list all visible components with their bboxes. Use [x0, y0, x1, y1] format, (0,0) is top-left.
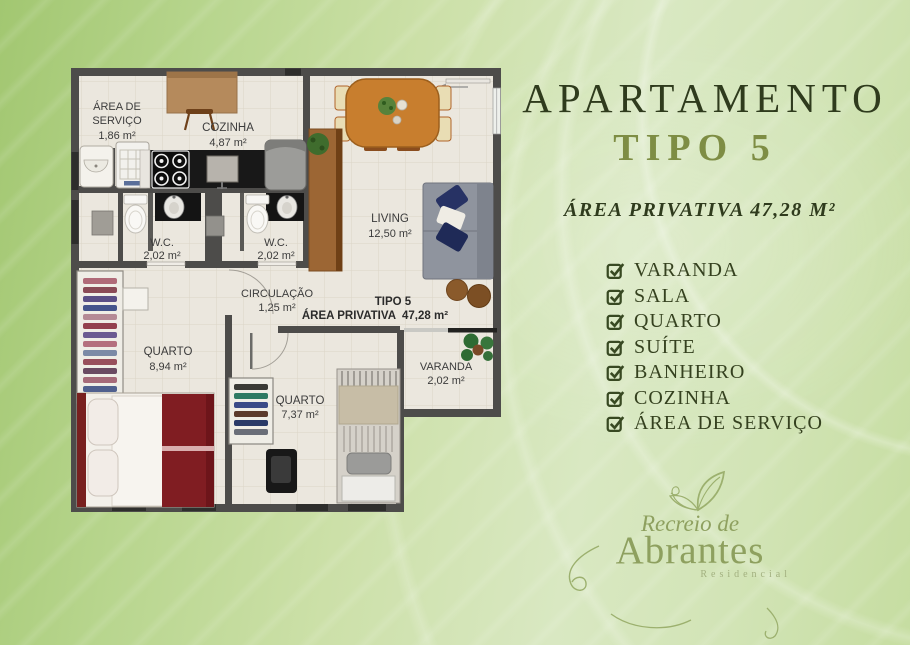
wc1-vanity	[155, 193, 201, 221]
room-area-wc1: 2,02 m²	[143, 250, 181, 262]
feature-label: COZINHA	[634, 387, 731, 410]
room-area-area-servico: 1,86 m²	[98, 130, 136, 142]
dining-table	[346, 79, 439, 147]
page-title: APARTAMENTO	[505, 74, 905, 122]
room-label-area-servico-2: SERVIÇO	[92, 115, 142, 127]
table-plant	[378, 97, 396, 115]
checked-checkbox-icon	[606, 338, 625, 357]
room-label-cozinha: COZINHA	[202, 122, 254, 134]
feature-item-varanda: VARANDA	[606, 260, 823, 281]
apartment-marketing-poster: { "poster": { "title_line1": "APARTAMENT…	[0, 0, 910, 645]
feature-item-area-de-servico: ÁREA DE SERVIÇO	[606, 413, 823, 434]
feature-label: VARANDA	[634, 259, 738, 282]
room-area-living: 12,50 m²	[368, 228, 412, 240]
laundry-sink	[80, 146, 113, 187]
feature-item-quarto: QUARTO	[606, 311, 823, 332]
feature-label: QUARTO	[634, 310, 722, 333]
feature-item-suite: SUÍTE	[606, 337, 823, 358]
bar-cabinet	[307, 129, 342, 271]
room-label-quarto2: QUARTO	[276, 395, 325, 407]
wc1-toilet	[124, 195, 147, 233]
room-area-wc2: 2,02 m²	[257, 250, 295, 262]
room-label-area-servico: ÁREA DE	[93, 100, 141, 113]
plan-tag-tipo: TIPO 5	[375, 296, 412, 308]
checked-checkbox-icon	[606, 261, 625, 280]
feature-label: ÁREA DE SERVIÇO	[634, 412, 823, 435]
single-bed	[337, 369, 400, 503]
plant-pot	[473, 345, 484, 356]
plan-tag-area-label: ÁREA PRIVATIVA	[302, 309, 396, 322]
service-shaft	[206, 216, 224, 236]
room-label-circulacao: CIRCULAÇÃO	[241, 287, 314, 300]
floor-plan: ÁREA DE SERVIÇO 1,86 m² COZINHA 4,87 m² …	[68, 64, 508, 516]
fridge	[265, 140, 306, 190]
room-area-varanda: 2,02 m²	[427, 375, 465, 387]
feature-item-cozinha: COZINHA	[606, 388, 823, 409]
feature-label: SALA	[634, 285, 690, 308]
feature-list: VARANDA SALA QUARTO SUÍTE BANHEIRO COZIN…	[606, 260, 823, 439]
feature-label: SUÍTE	[634, 336, 696, 359]
desk-chair	[266, 449, 297, 493]
varanda-railing	[448, 328, 497, 333]
wc2-toilet	[246, 195, 269, 233]
cabinet-plant	[307, 133, 329, 155]
checked-checkbox-icon	[606, 312, 625, 331]
feature-item-banheiro: BANHEIRO	[606, 362, 823, 383]
feature-item-sala: SALA	[606, 286, 823, 307]
checked-checkbox-icon	[606, 414, 625, 433]
room-area-quarto1: 8,94 m²	[149, 361, 187, 373]
kitchen-upper-counter	[167, 72, 237, 113]
wc2-vanity	[266, 193, 304, 221]
entry-door	[446, 79, 490, 83]
checked-checkbox-icon	[606, 287, 625, 306]
room-area-circulacao: 1,25 m²	[258, 302, 296, 314]
room-area-cozinha: 4,87 m²	[209, 137, 247, 149]
varanda-glass-door	[404, 328, 448, 332]
plan-tag-area-value: 47,28 m²	[402, 310, 448, 322]
brand-logo: Recreio de Abrantes Residencial	[555, 468, 825, 580]
quarto2-wardrobe	[229, 378, 273, 444]
wc1-shower	[92, 211, 113, 235]
leaf-ornament-icon	[555, 468, 825, 512]
room-area-quarto2: 7,37 m²	[281, 409, 319, 421]
room-label-living: LIVING	[371, 213, 409, 225]
area-privativa-subtitle: ÁREA PRIVATIVA 47,28 M²	[505, 199, 895, 222]
checked-checkbox-icon	[606, 363, 625, 382]
room-label-quarto1: QUARTO	[144, 346, 193, 358]
sofa	[423, 183, 493, 279]
room-label-wc2: W.C.	[264, 237, 288, 249]
room-label-varanda: VARANDA	[420, 361, 473, 373]
page-title-tipo: TIPO 5	[495, 126, 895, 170]
logo-abrantes: Abrantes	[555, 536, 825, 566]
double-bed	[77, 393, 214, 507]
stove	[152, 151, 189, 188]
checked-checkbox-icon	[606, 389, 625, 408]
feature-label: BANHEIRO	[634, 361, 745, 384]
room-label-wc1: W.C.	[150, 237, 174, 249]
